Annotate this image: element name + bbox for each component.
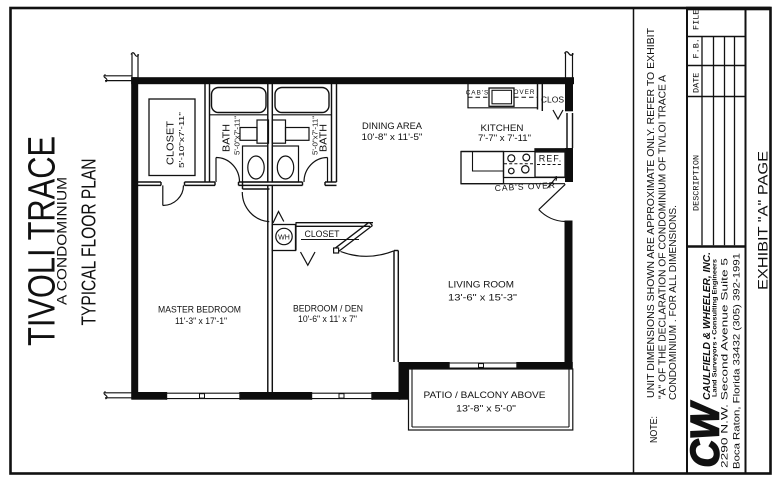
svg-text:11'-3" x 17'-1": 11'-3" x 17'-1" [175,316,227,327]
svg-text:5'-0"x7'-11": 5'-0"x7'-11" [233,116,242,155]
svg-text:13'-8" x 5'-0": 13'-8" x 5'-0" [456,404,516,415]
svg-text:7'-7" x 7'-11": 7'-7" x 7'-11" [478,133,531,144]
svg-text:CONDOMINIUM . FOR ALL DIMEN: CONDOMINIUM . FOR ALL DIMENSIONS. [668,205,679,400]
svg-text:13'-6" x 15'-3": 13'-6" x 15'-3" [448,293,517,304]
svg-text:LIVING ROOM: LIVING ROOM [448,280,514,291]
svg-text:"A" OF THE DECLARATION OF: "A" OF THE DECLARATION OF CONDOMINIUM OF… [658,75,669,399]
svg-text:10'-6" x 11' x 7": 10'-6" x 11' x 7" [298,314,357,325]
svg-text:REF.: REF. [539,154,563,164]
svg-text:DINING AREA: DINING AREA [362,121,423,132]
svg-text:BATH: BATH [222,124,233,152]
svg-text:PATIO / BALCONY ABOVE: PATIO / BALCONY ABOVE [424,390,546,401]
svg-text:FILE: FILE [692,10,702,30]
svg-text:Land Surveyors • Consulting: Land Surveyors • Consulting Engineers [712,259,719,397]
svg-text:2290 N.W. Second Avenue Su: 2290 N.W. Second Avenue Suite 5 [720,258,730,468]
svg-text:UNIT DIMENSIONS SHOWN ARE: UNIT DIMENSIONS SHOWN ARE APPROXIMATE ON… [646,28,657,398]
svg-text:Boca Raton, Florida 33432: Boca Raton, Florida 33432 (305) 392-1991 [732,253,742,469]
svg-text:5'-10"x7'-11": 5'-10"x7'-11" [177,112,186,168]
svg-text:DESCRIPTION: DESCRIPTION [692,155,702,211]
svg-text:CLOS: CLOS [541,95,564,105]
svg-text:CLOSET: CLOSET [166,121,177,165]
svg-text:A CONDOMINIUM: A CONDOMINIUM [55,177,70,305]
svg-text:BATH: BATH [319,124,330,152]
svg-text:DATE: DATE [692,73,702,93]
svg-text:TYPICAL FLOOR PLAN: TYPICAL FLOOR PLAN [79,159,101,326]
svg-text:WH: WH [278,235,290,242]
svg-text:CAB'S: CAB'S [466,90,490,97]
svg-text:EXHIBIT "A" PAGE: EXHIBIT "A" PAGE [756,151,772,290]
svg-text:F.B.: F.B. [692,38,702,58]
svg-text:OVER: OVER [513,89,535,96]
svg-text:CLOSET: CLOSET [305,229,340,240]
svg-text:NOTE:: NOTE: [649,416,660,443]
svg-text:BEDROOM / DEN: BEDROOM / DEN [293,304,363,315]
svg-text:10'-8" x 11'-5": 10'-8" x 11'-5" [362,132,423,143]
svg-text:MASTER BEDROOM: MASTER BEDROOM [158,305,241,316]
